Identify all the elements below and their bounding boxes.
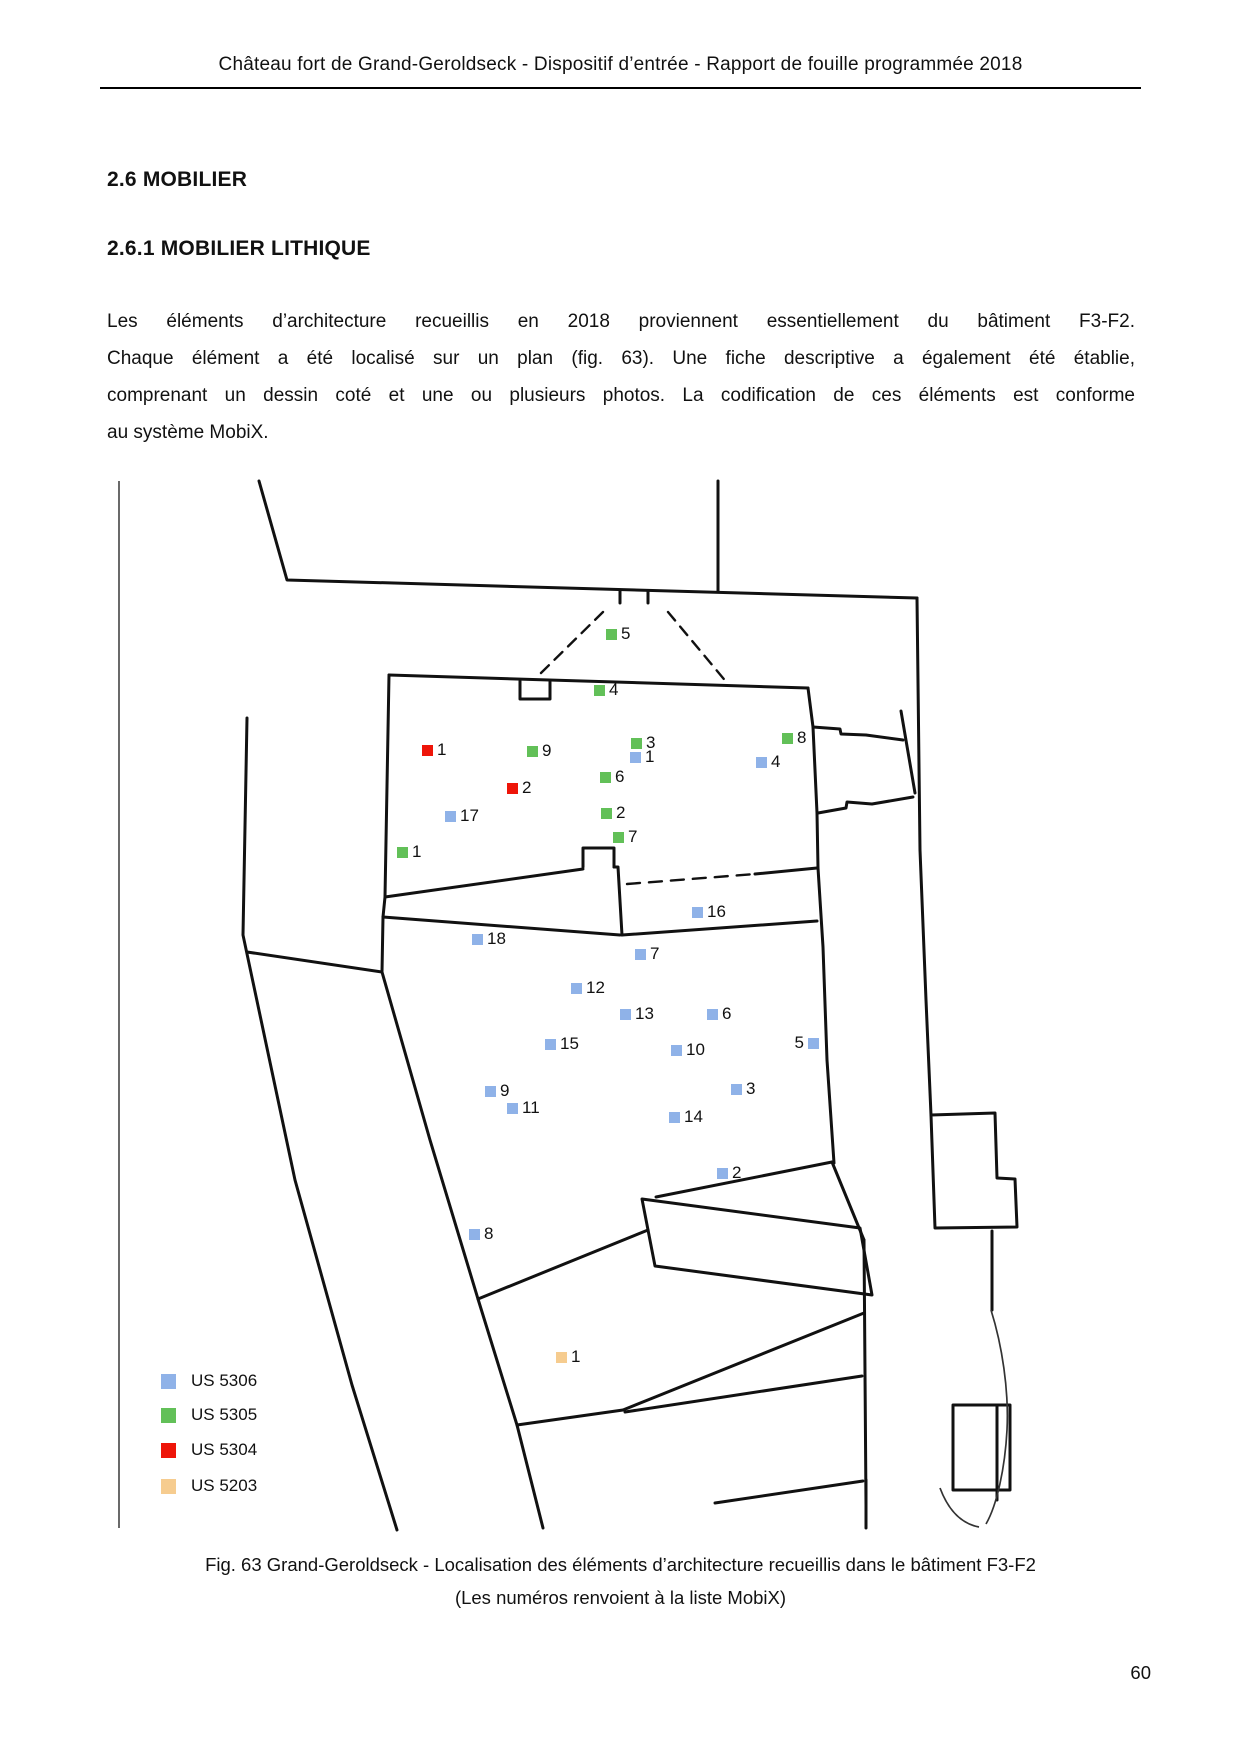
plan-marker: 11 — [507, 1098, 540, 1118]
plan-marker: 9 — [527, 741, 551, 761]
plan-marker-square — [545, 1039, 556, 1050]
plan-marker-square — [485, 1086, 496, 1097]
plan-marker-square — [445, 811, 456, 822]
plan-marker: 3 — [731, 1079, 755, 1099]
plan-marker-label: 2 — [522, 778, 531, 798]
plan-marker: 8 — [782, 728, 806, 748]
plan-marker-square — [527, 746, 538, 757]
plan-marker-label: 8 — [484, 1224, 493, 1244]
plan-marker-label: 9 — [542, 741, 551, 761]
plan-marker-label: 4 — [609, 680, 618, 700]
plan-marker: 14 — [669, 1107, 703, 1127]
plan-marker-square — [601, 808, 612, 819]
plan-marker: 13 — [620, 1004, 654, 1024]
plan-marker-label: 12 — [586, 978, 605, 998]
legend-label: US 5304 — [191, 1440, 257, 1460]
plan-marker-square — [397, 847, 408, 858]
legend-swatch — [161, 1479, 176, 1494]
plan-marker: 2 — [717, 1163, 741, 1183]
plan-marker-label: 1 — [645, 747, 654, 767]
plan-marker-label: 1 — [571, 1347, 580, 1367]
plan-marker-square — [630, 752, 641, 763]
plan-marker-square — [671, 1045, 682, 1056]
plan-marker-square — [808, 1038, 819, 1049]
legend-label: US 5203 — [191, 1476, 257, 1496]
plan-marker: 1 — [422, 740, 446, 760]
plan-marker-label: 2 — [732, 1163, 741, 1183]
plan-marker-square — [756, 757, 767, 768]
plan-marker: 4 — [594, 680, 618, 700]
figure-caption-line2: (Les numéros renvoient à la liste MobiX) — [100, 1581, 1141, 1614]
legend-label: US 5305 — [191, 1405, 257, 1425]
legend-swatch — [161, 1374, 176, 1389]
plan-marker: 16 — [692, 902, 726, 922]
plan-marker-label: 5 — [795, 1033, 804, 1053]
plan-marker-square — [707, 1009, 718, 1020]
plan-marker-label: 10 — [686, 1040, 705, 1060]
plan-marker-square — [594, 685, 605, 696]
legend-item: US 5305 — [161, 1405, 257, 1425]
plan-marker-label: 1 — [437, 740, 446, 760]
plan-marker-label: 13 — [635, 1004, 654, 1024]
plan-marker-label: 17 — [460, 806, 479, 826]
plan-marker: 8 — [469, 1224, 493, 1244]
site-plan-figure: 543986271121417161871213615105931114281 … — [0, 0, 1241, 1755]
plan-marker: 5 — [795, 1033, 819, 1053]
plan-marker-label: 7 — [650, 944, 659, 964]
figure-caption-line1: Fig. 63 Grand-Geroldseck - Localisation … — [100, 1548, 1141, 1581]
figure-caption: Fig. 63 Grand-Geroldseck - Localisation … — [100, 1548, 1141, 1614]
legend-item: US 5304 — [161, 1440, 257, 1460]
plan-marker-label: 16 — [707, 902, 726, 922]
plan-marker-square — [606, 629, 617, 640]
plan-marker-square — [507, 783, 518, 794]
plan-marker: 9 — [485, 1081, 509, 1101]
plan-marker: 5 — [606, 624, 630, 644]
plan-marker-square — [571, 983, 582, 994]
plan-marker-square — [692, 907, 703, 918]
plan-marker: 15 — [545, 1034, 579, 1054]
plan-marker-label: 18 — [487, 929, 506, 949]
plan-marker: 2 — [507, 778, 531, 798]
plan-marker: 6 — [707, 1004, 731, 1024]
plan-marker: 1 — [630, 747, 654, 767]
plan-marker: 6 — [600, 767, 624, 787]
plan-marker-label: 11 — [522, 1098, 540, 1118]
plan-marker-square — [507, 1103, 518, 1114]
plan-marker: 18 — [472, 929, 506, 949]
plan-marker: 17 — [445, 806, 479, 826]
plan-marker: 10 — [671, 1040, 705, 1060]
plan-marker-label: 7 — [628, 827, 637, 847]
plan-marker-square — [717, 1168, 728, 1179]
document-page: Château fort de Grand-Geroldseck - Dispo… — [0, 0, 1241, 1755]
plan-marker: 12 — [571, 978, 605, 998]
plan-marker-square — [669, 1112, 680, 1123]
legend-item: US 5306 — [161, 1371, 257, 1391]
plan-marker: 1 — [397, 842, 421, 862]
plan-marker-square — [556, 1352, 567, 1363]
plan-marker-square — [422, 745, 433, 756]
plan-marker-square — [635, 949, 646, 960]
plan-marker-label: 8 — [797, 728, 806, 748]
legend-label: US 5306 — [191, 1371, 257, 1391]
plan-marker: 7 — [613, 827, 637, 847]
plan-marker-square — [472, 934, 483, 945]
plan-marker-label: 3 — [746, 1079, 755, 1099]
plan-marker-label: 5 — [621, 624, 630, 644]
plan-marker-label: 6 — [722, 1004, 731, 1024]
plan-marker-label: 1 — [412, 842, 421, 862]
plan-marker-square — [613, 832, 624, 843]
plan-marker: 2 — [601, 803, 625, 823]
plan-marker: 4 — [756, 752, 780, 772]
legend-swatch — [161, 1443, 176, 1458]
plan-marker-label: 6 — [615, 767, 624, 787]
plan-marker-square — [600, 772, 611, 783]
plan-marker-square — [620, 1009, 631, 1020]
plan-marker-label: 4 — [771, 752, 780, 772]
plan-marker-square — [469, 1229, 480, 1240]
legend-swatch — [161, 1408, 176, 1423]
legend-item: US 5203 — [161, 1476, 257, 1496]
plan-marker-square — [782, 733, 793, 744]
plan-marker: 1 — [556, 1347, 580, 1367]
plan-marker-label: 2 — [616, 803, 625, 823]
plan-marker-label: 15 — [560, 1034, 579, 1054]
page-number: 60 — [1130, 1662, 1151, 1684]
plan-marker-square — [731, 1084, 742, 1095]
plan-marker-label: 14 — [684, 1107, 703, 1127]
plan-marker: 7 — [635, 944, 659, 964]
